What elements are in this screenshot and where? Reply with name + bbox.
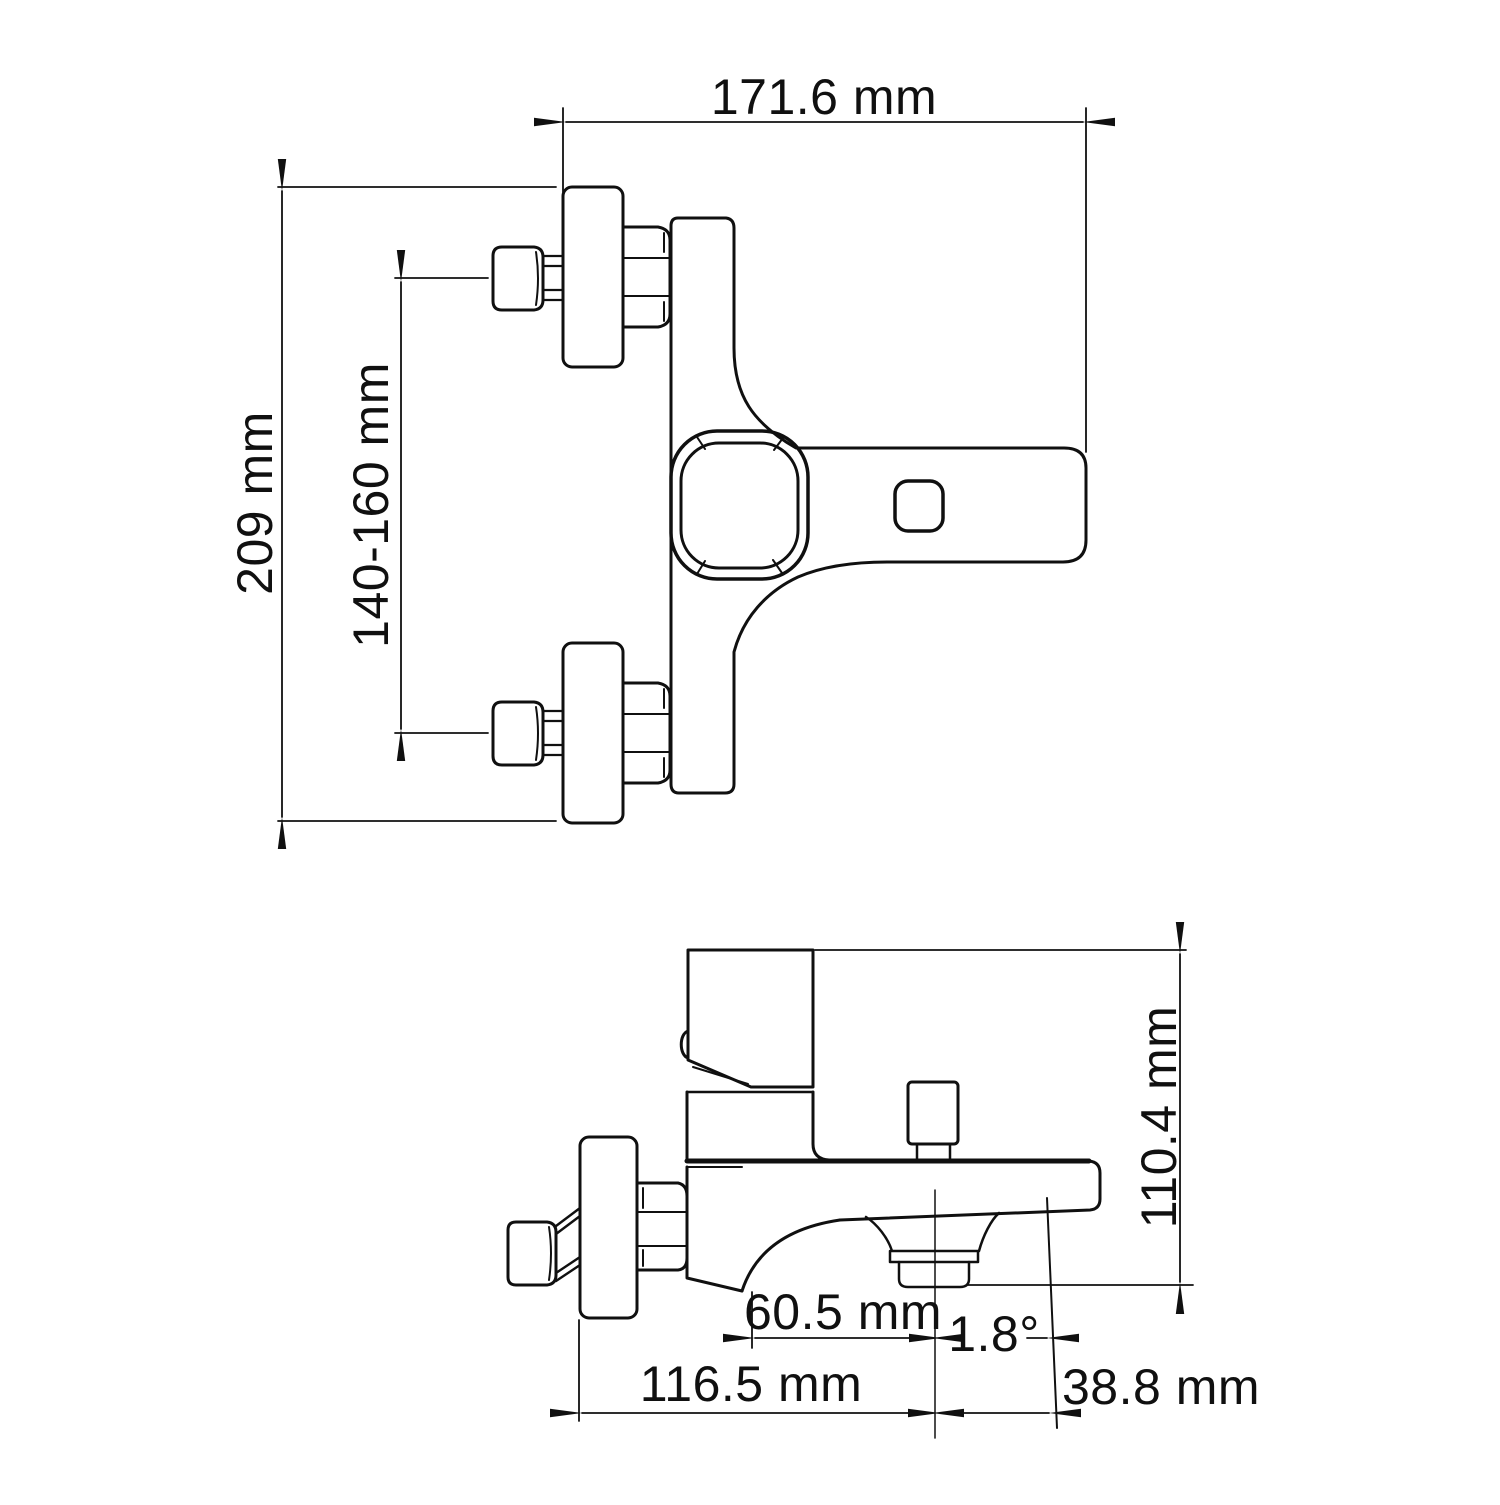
side-body-edges [687,1092,829,1160]
side-hex-nut [637,1183,687,1270]
side-height-label: 110.4 mm [1131,1006,1187,1229]
spout-angle-line [1047,1198,1057,1428]
side-handle [681,950,813,1087]
front-body-outline [671,218,1086,793]
dim-side-tip-offset: 38.8 mm [940,1359,1260,1415]
side-view: 110.4 mm 60.5 mm 1.8° 116.5 mm 38.8 mm [508,950,1260,1438]
side-body-underside-curve [742,1220,840,1291]
side-pipe-diagonals [556,1208,580,1281]
side-body [687,1092,840,1291]
diverter-knob-neck [917,1144,950,1161]
top-hex-nut [623,227,670,327]
front-view: 171.6 mm 209 mm 140-160 mm [227,69,1086,823]
front-mount-span-label: 140-160 mm [343,362,399,648]
dim-side-angle: 1.8° [941,1306,1047,1362]
top-cap-fitting [493,247,543,310]
bottom-pipe-lines [543,711,564,755]
aerator-ring [890,1251,978,1262]
bottom-hex-nut [623,683,670,783]
front-height-label: 209 mm [227,411,283,595]
side-angle-label: 1.8° [948,1306,1040,1362]
side-body-front-slab [687,1167,742,1291]
side-spout [687,1161,1100,1220]
side-wall-flange [580,1137,637,1318]
front-width-label: 171.6 mm [711,69,937,125]
extension-line [395,278,488,733]
side-diverter-knob [908,1082,958,1161]
top-pipe-lines [543,256,564,300]
side-handle-outline [688,950,813,1087]
dim-side-aerator-offset: 60.5 mm [744,1284,942,1348]
front-top-connector [493,187,670,367]
side-aerator-offset-label: 60.5 mm [744,1284,942,1340]
diverter-knob-cap [908,1082,958,1144]
front-bottom-connector [493,643,670,823]
bottom-cap-fitting [493,702,543,765]
top-wall-flange [563,187,623,367]
dim-side-height: 110.4 mm [815,950,1193,1285]
spout-end-outline [840,1161,1100,1220]
side-aerator [866,1213,999,1287]
side-depth-label: 116.5 mm [640,1356,863,1412]
side-tip-offset-label: 38.8 mm [1062,1359,1260,1415]
dim-front-mount-span: 140-160 mm [343,278,488,733]
bottom-wall-flange [563,643,623,823]
drawing-page: 171.6 mm 209 mm 140-160 mm [0,0,1500,1500]
technical-drawing: 171.6 mm 209 mm 140-160 mm [0,0,1500,1500]
front-handle-button [895,481,943,531]
